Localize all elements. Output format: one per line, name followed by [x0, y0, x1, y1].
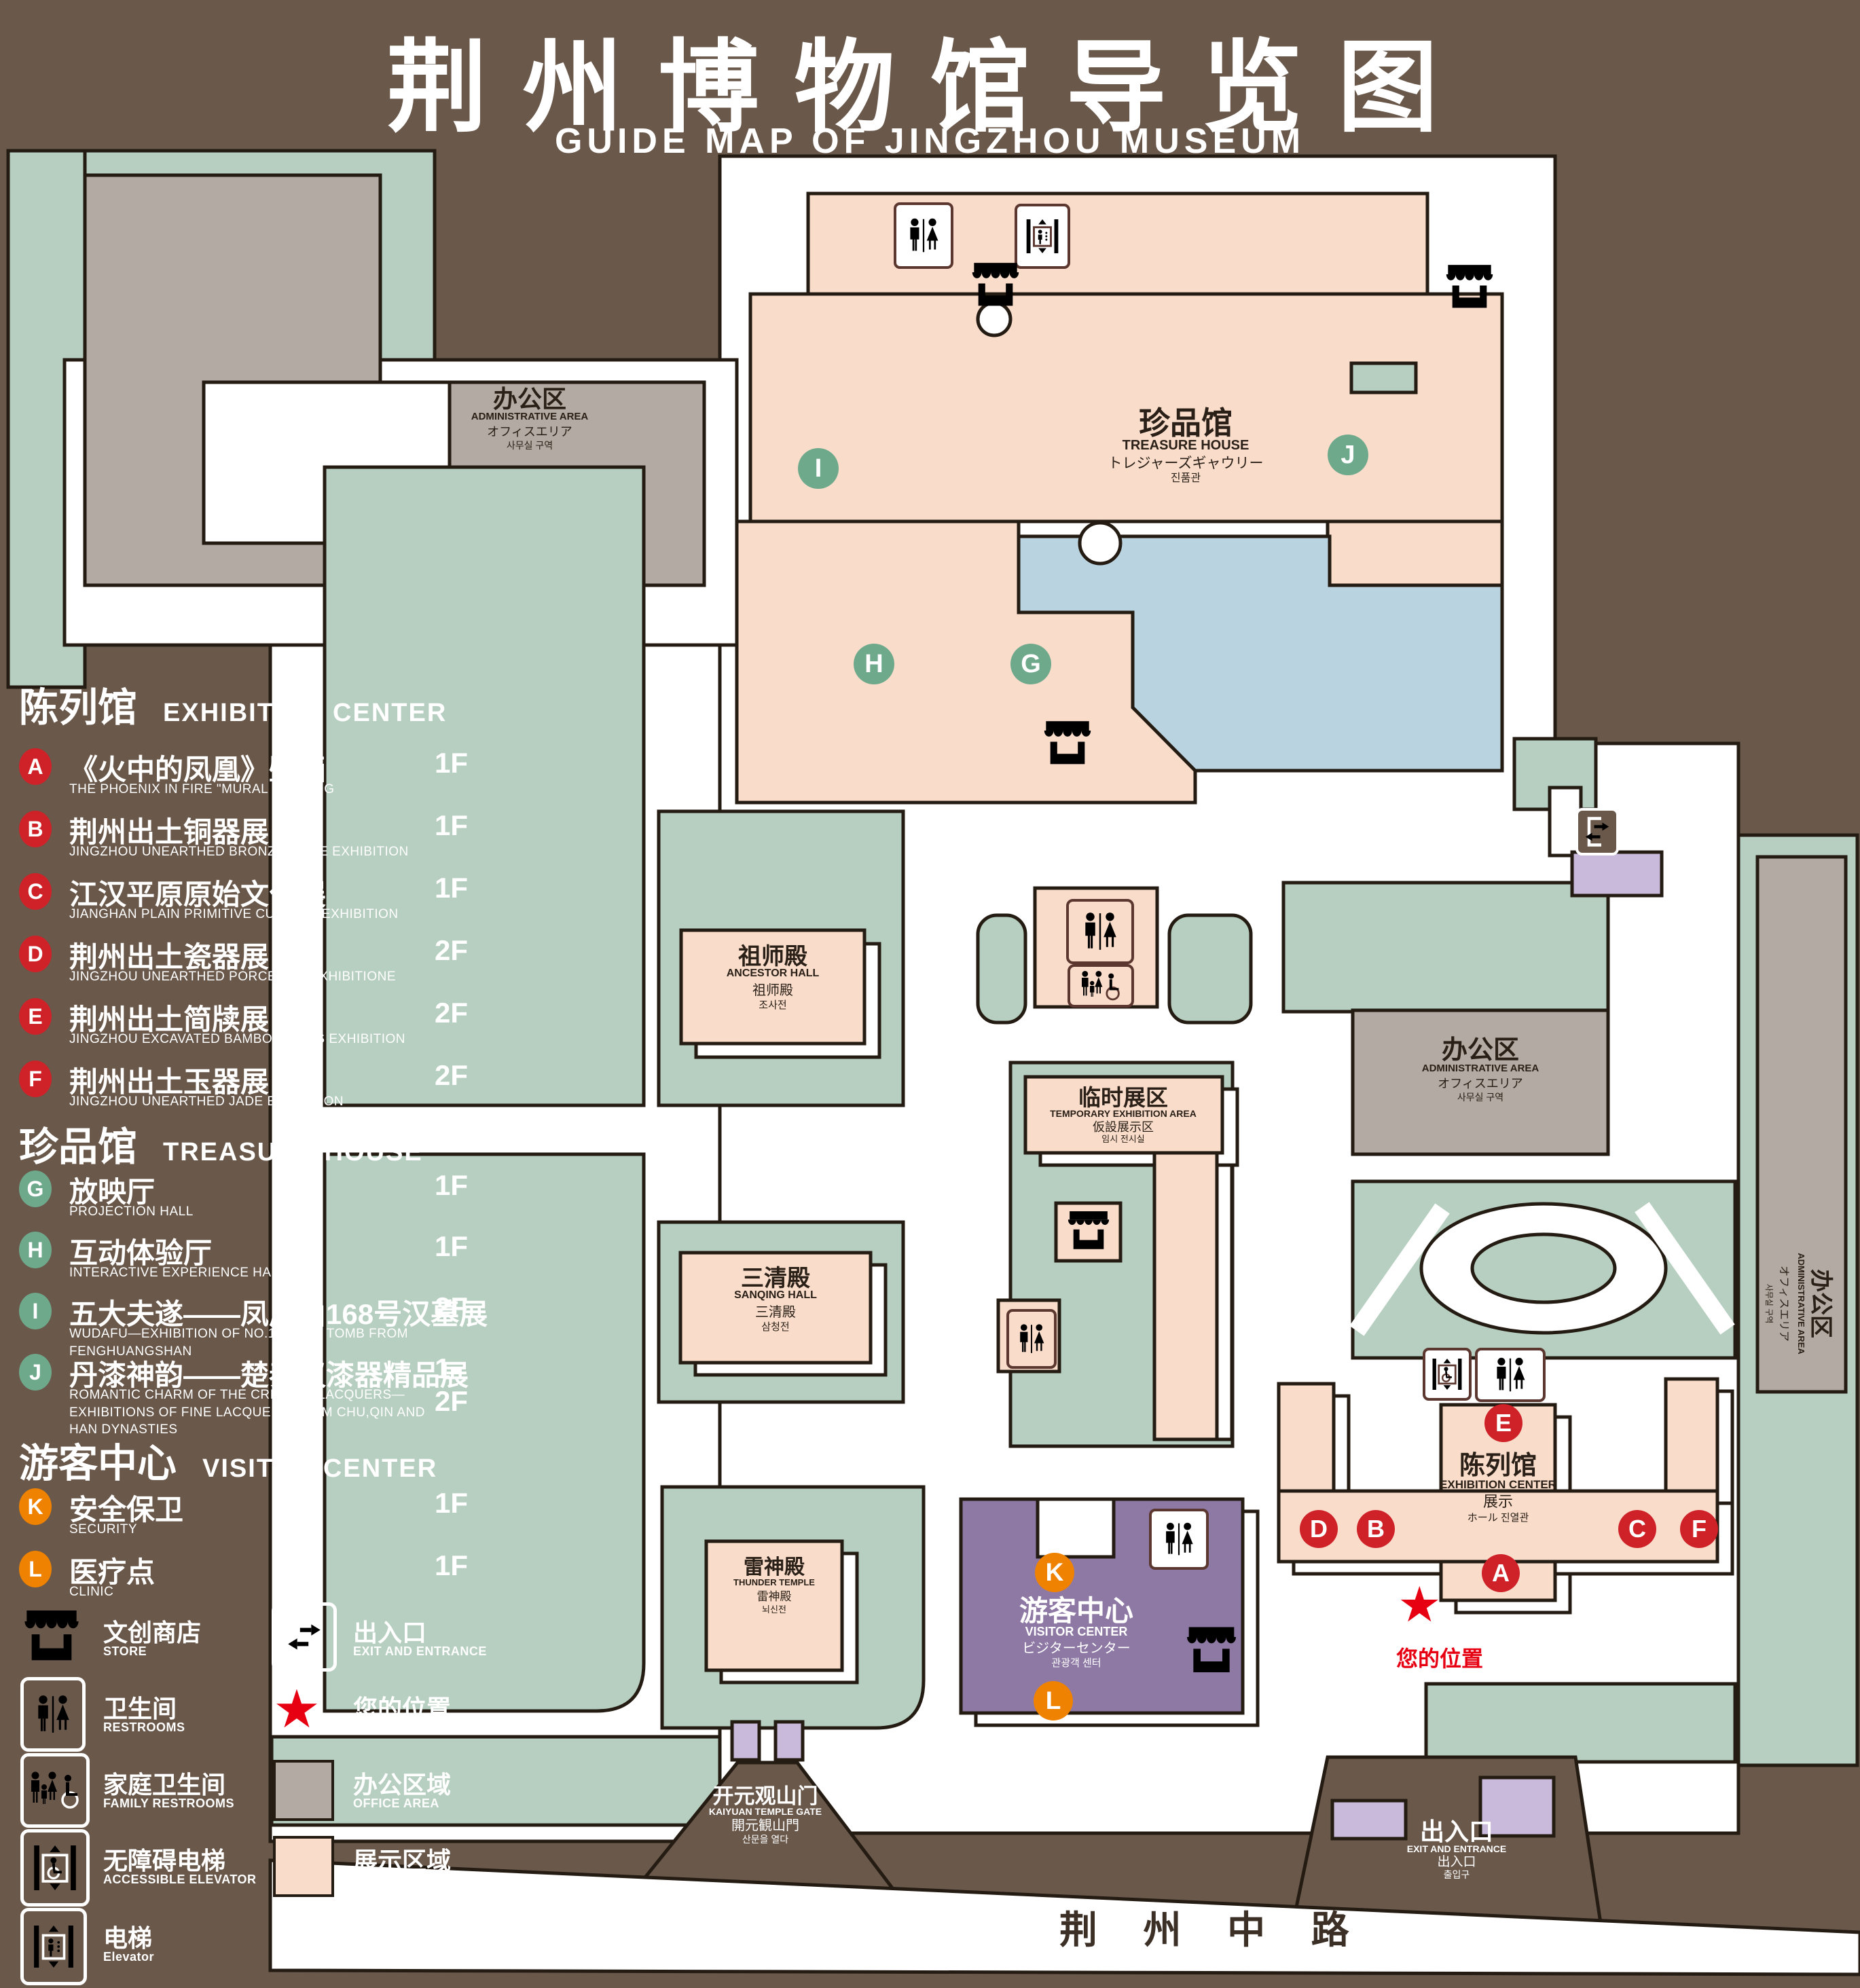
accessible-elevator-icon	[20, 1829, 90, 1907]
item-badge: A	[19, 748, 52, 785]
store-icon	[20, 1608, 83, 1665]
legend-list-item: G 放映厅 PROJECTION HALL 1F	[19, 1169, 475, 1229]
legend-list-item: L 医疗点 CLINIC 1F	[19, 1549, 475, 1609]
legend-exit-label: 出入口	[353, 1613, 426, 1649]
item-badge: F	[19, 1061, 52, 1097]
legend-list-item: D 荆州出土瓷器展 JINGZHOU UNEARTHED PORCELAIN E…	[19, 934, 475, 994]
building-temporary	[1025, 1077, 1222, 1153]
legend-display-caption: DISPLAY AREA	[353, 1873, 446, 1887]
marker-i: I	[798, 448, 839, 489]
legend-accessible-caption: ACCESSIBLE ELEVATOR	[103, 1873, 257, 1887]
item-floor: 2F	[435, 1059, 468, 1092]
family-restrooms-icon	[1068, 964, 1134, 1008]
building-thunder-temple	[706, 1541, 842, 1670]
green-restroom-l	[978, 915, 1025, 1023]
section-visitor-center: 游客中心 VISITOR CENTER	[19, 1431, 437, 1488]
item-badge: D	[19, 936, 52, 972]
accessible-elevator-icon	[1423, 1348, 1472, 1401]
building-ancestor-hall	[681, 930, 864, 1044]
legend-office-caption: OFFICE AREA	[353, 1797, 439, 1811]
restrooms-icon	[1066, 899, 1134, 964]
legend-list-item: H 互动体验厅 INTERACTIVE EXPERIENCE HALL 1F	[19, 1230, 475, 1290]
item-title-en: JIANGHAN PLAIN PRIMITIVE CULTURE EXHIBIT…	[69, 906, 450, 923]
item-floor: 1F	[435, 872, 468, 904]
legend-family-caption: FAMILY RESTROOMS	[103, 1797, 234, 1811]
legend-list-item: A 《火中的凤凰》壁画 THE PHOENIX IN FIRE "MURAL P…	[19, 747, 475, 807]
green-se	[1426, 1684, 1735, 1762]
green-admin-mid	[1283, 883, 1608, 1012]
restrooms-icon	[1149, 1509, 1209, 1570]
item-badge: H	[19, 1232, 52, 1268]
item-floor: 2F	[435, 934, 468, 967]
exit-entrance-icon	[1575, 808, 1619, 855]
restrooms-icon	[894, 202, 953, 269]
guide-map-poster: 荆州博物馆导览图 GUIDE MAP OF JINGZHOU MUSEUM	[0, 0, 1860, 1988]
building-temporary-wing	[1154, 1153, 1217, 1439]
item-title-en: THE PHOENIX IN FIRE "MURAL PAINTING	[69, 781, 450, 798]
treasure-courtyard	[1351, 363, 1416, 392]
gate-block-l	[732, 1722, 759, 1760]
office-area-swatch	[273, 1760, 334, 1821]
marker-d: D	[1300, 1510, 1338, 1548]
legend-store-label: 文创商店	[103, 1613, 201, 1649]
marker-j: J	[1328, 435, 1368, 475]
legend-store-caption: STORE	[103, 1644, 147, 1659]
item-floor: 1F	[435, 1169, 468, 1202]
your-location-label: 您的位置	[1379, 1642, 1501, 1673]
legend-list-item: I 五大夫遂——凤凰山168号汉墓展 WUDAFU—EXHIBITION OF …	[19, 1291, 475, 1351]
marker-b: B	[1357, 1510, 1395, 1548]
item-title-en: JINGZHOU UNEARTHED JADE EXHIBITION	[69, 1093, 450, 1111]
entrance-block-se1	[1332, 1801, 1406, 1839]
item-floor: 1-2F	[435, 1352, 475, 1418]
marker-a: A	[1482, 1554, 1520, 1592]
item-title-en: CLINIC	[69, 1583, 450, 1601]
item-badge: G	[19, 1171, 52, 1207]
legend-elevator-label: 电梯	[103, 1919, 152, 1954]
green-restroom-r	[1169, 915, 1251, 1023]
legend-office-label: 办公区域	[353, 1765, 451, 1801]
gate-block-r	[776, 1722, 803, 1760]
marker-f: F	[1680, 1510, 1718, 1548]
legend-location-caption: YOUR LOCATION	[353, 1720, 459, 1735]
display-area-swatch	[273, 1836, 334, 1897]
store-icon	[967, 260, 1024, 310]
item-floor: 1F	[435, 809, 468, 842]
restrooms-icon	[20, 1677, 86, 1752]
restrooms-icon	[1475, 1348, 1546, 1402]
section-exhibition-center: 陈列馆 EXHIBITION CENTER	[19, 676, 447, 733]
fountain	[1080, 523, 1120, 564]
marker-e: E	[1484, 1404, 1522, 1442]
entrance-block-se2	[1480, 1778, 1554, 1836]
item-title-en: JINGZHOU EXCAVATED BAMBOO SLIPS EXHIBITI…	[69, 1031, 450, 1048]
building-sanqing-hall	[680, 1253, 871, 1363]
restrooms-icon	[1006, 1309, 1057, 1369]
store-icon	[1063, 1209, 1114, 1253]
item-badge: E	[19, 998, 52, 1035]
entrance-block-ne	[1572, 852, 1662, 896]
green-sw	[272, 1737, 720, 1825]
marker-k: K	[1035, 1553, 1074, 1592]
legend-family-label: 家庭卫生间	[103, 1765, 225, 1801]
item-badge: J	[19, 1354, 52, 1391]
item-floor: 1F	[435, 1487, 468, 1520]
marker-g: G	[1010, 644, 1051, 684]
marker-l: L	[1034, 1681, 1073, 1720]
exit-entrance-icon	[272, 1602, 337, 1672]
building-exhibition-lwing	[1279, 1384, 1334, 1491]
item-floor: 2F	[435, 1291, 468, 1324]
item-title-en: PROJECTION HALL	[69, 1203, 450, 1221]
item-badge: B	[19, 811, 52, 847]
your-location-star: ★	[1398, 1581, 1442, 1630]
legend-list-item: E 荆州出土简牍展 JINGZHOU EXCAVATED BAMBOO SLIP…	[19, 997, 475, 1056]
item-floor: 1F	[435, 747, 468, 779]
legend-restrooms-caption: RESTROOMS	[103, 1720, 185, 1735]
item-badge: I	[19, 1293, 52, 1329]
building-treasure-east	[1328, 521, 1502, 585]
label-road: 荆 州 中 路	[1059, 1900, 1331, 1955]
legend-elevator-caption: Elevator	[103, 1950, 154, 1964]
legend-exit-caption: EXIT AND ENTRANCE	[353, 1644, 487, 1659]
legend-list-item: B 荆州出土铜器展 JINGZHOU UNEARTHED BRONZE WARE…	[19, 809, 475, 869]
item-title-en: JINGZHOU UNEARTHED BRONZE WARE EXHIBITIO…	[69, 843, 450, 861]
legend-list-item: C 江汉平原原始文化展 JIANGHAN PLAIN PRIMITIVE CUL…	[19, 872, 475, 932]
item-floor: 1F	[435, 1549, 468, 1582]
store-icon	[1039, 718, 1096, 769]
label-admin-east: 办公区 ADMINISTRATIVE AREA オフィスエリア 사무실 구역	[1700, 1202, 1860, 1405]
building-admin-mid	[1353, 1010, 1608, 1154]
your-location-icon: ★	[273, 1682, 321, 1735]
item-title-en: INTERACTIVE EXPERIENCE HALL	[69, 1264, 450, 1282]
legend-display-label: 展示区域	[353, 1841, 451, 1877]
legend-location-label: 您的位置	[353, 1689, 451, 1725]
store-icon	[1441, 262, 1498, 312]
item-title-en: JINGZHOU UNEARTHED PORCELAIN EXHIBITIONE	[69, 968, 450, 986]
item-badge: K	[19, 1488, 52, 1525]
legend-list-item: F 荆州出土玉器展 JINGZHOU UNEARTHED JADE EXHIBI…	[19, 1059, 475, 1119]
item-badge: L	[19, 1551, 52, 1587]
family-restrooms-icon	[20, 1753, 90, 1828]
legend-restrooms-label: 卫生间	[103, 1689, 177, 1725]
legend-accessible-label: 无障碍电梯	[103, 1841, 225, 1877]
legend-list-item: K 安全保卫 SECURITY 1F	[19, 1487, 475, 1547]
elevator-icon	[1015, 204, 1070, 269]
item-floor: 2F	[435, 997, 468, 1029]
item-badge: C	[19, 873, 52, 910]
section-treasure-house: 珍品馆 TREASURE HOUSE	[19, 1115, 423, 1172]
building-treasure-main	[750, 294, 1502, 521]
elevator-icon	[20, 1908, 87, 1985]
marker-h: H	[854, 644, 894, 684]
item-title-en: SECURITY	[69, 1521, 450, 1539]
marker-c: C	[1618, 1510, 1656, 1548]
store-icon	[1180, 1623, 1243, 1678]
item-floor: 1F	[435, 1230, 468, 1263]
legend-list-item: J 丹漆神韵——楚秦汉漆器精品展 ROMANTIC CHARM OF THE C…	[19, 1352, 475, 1412]
